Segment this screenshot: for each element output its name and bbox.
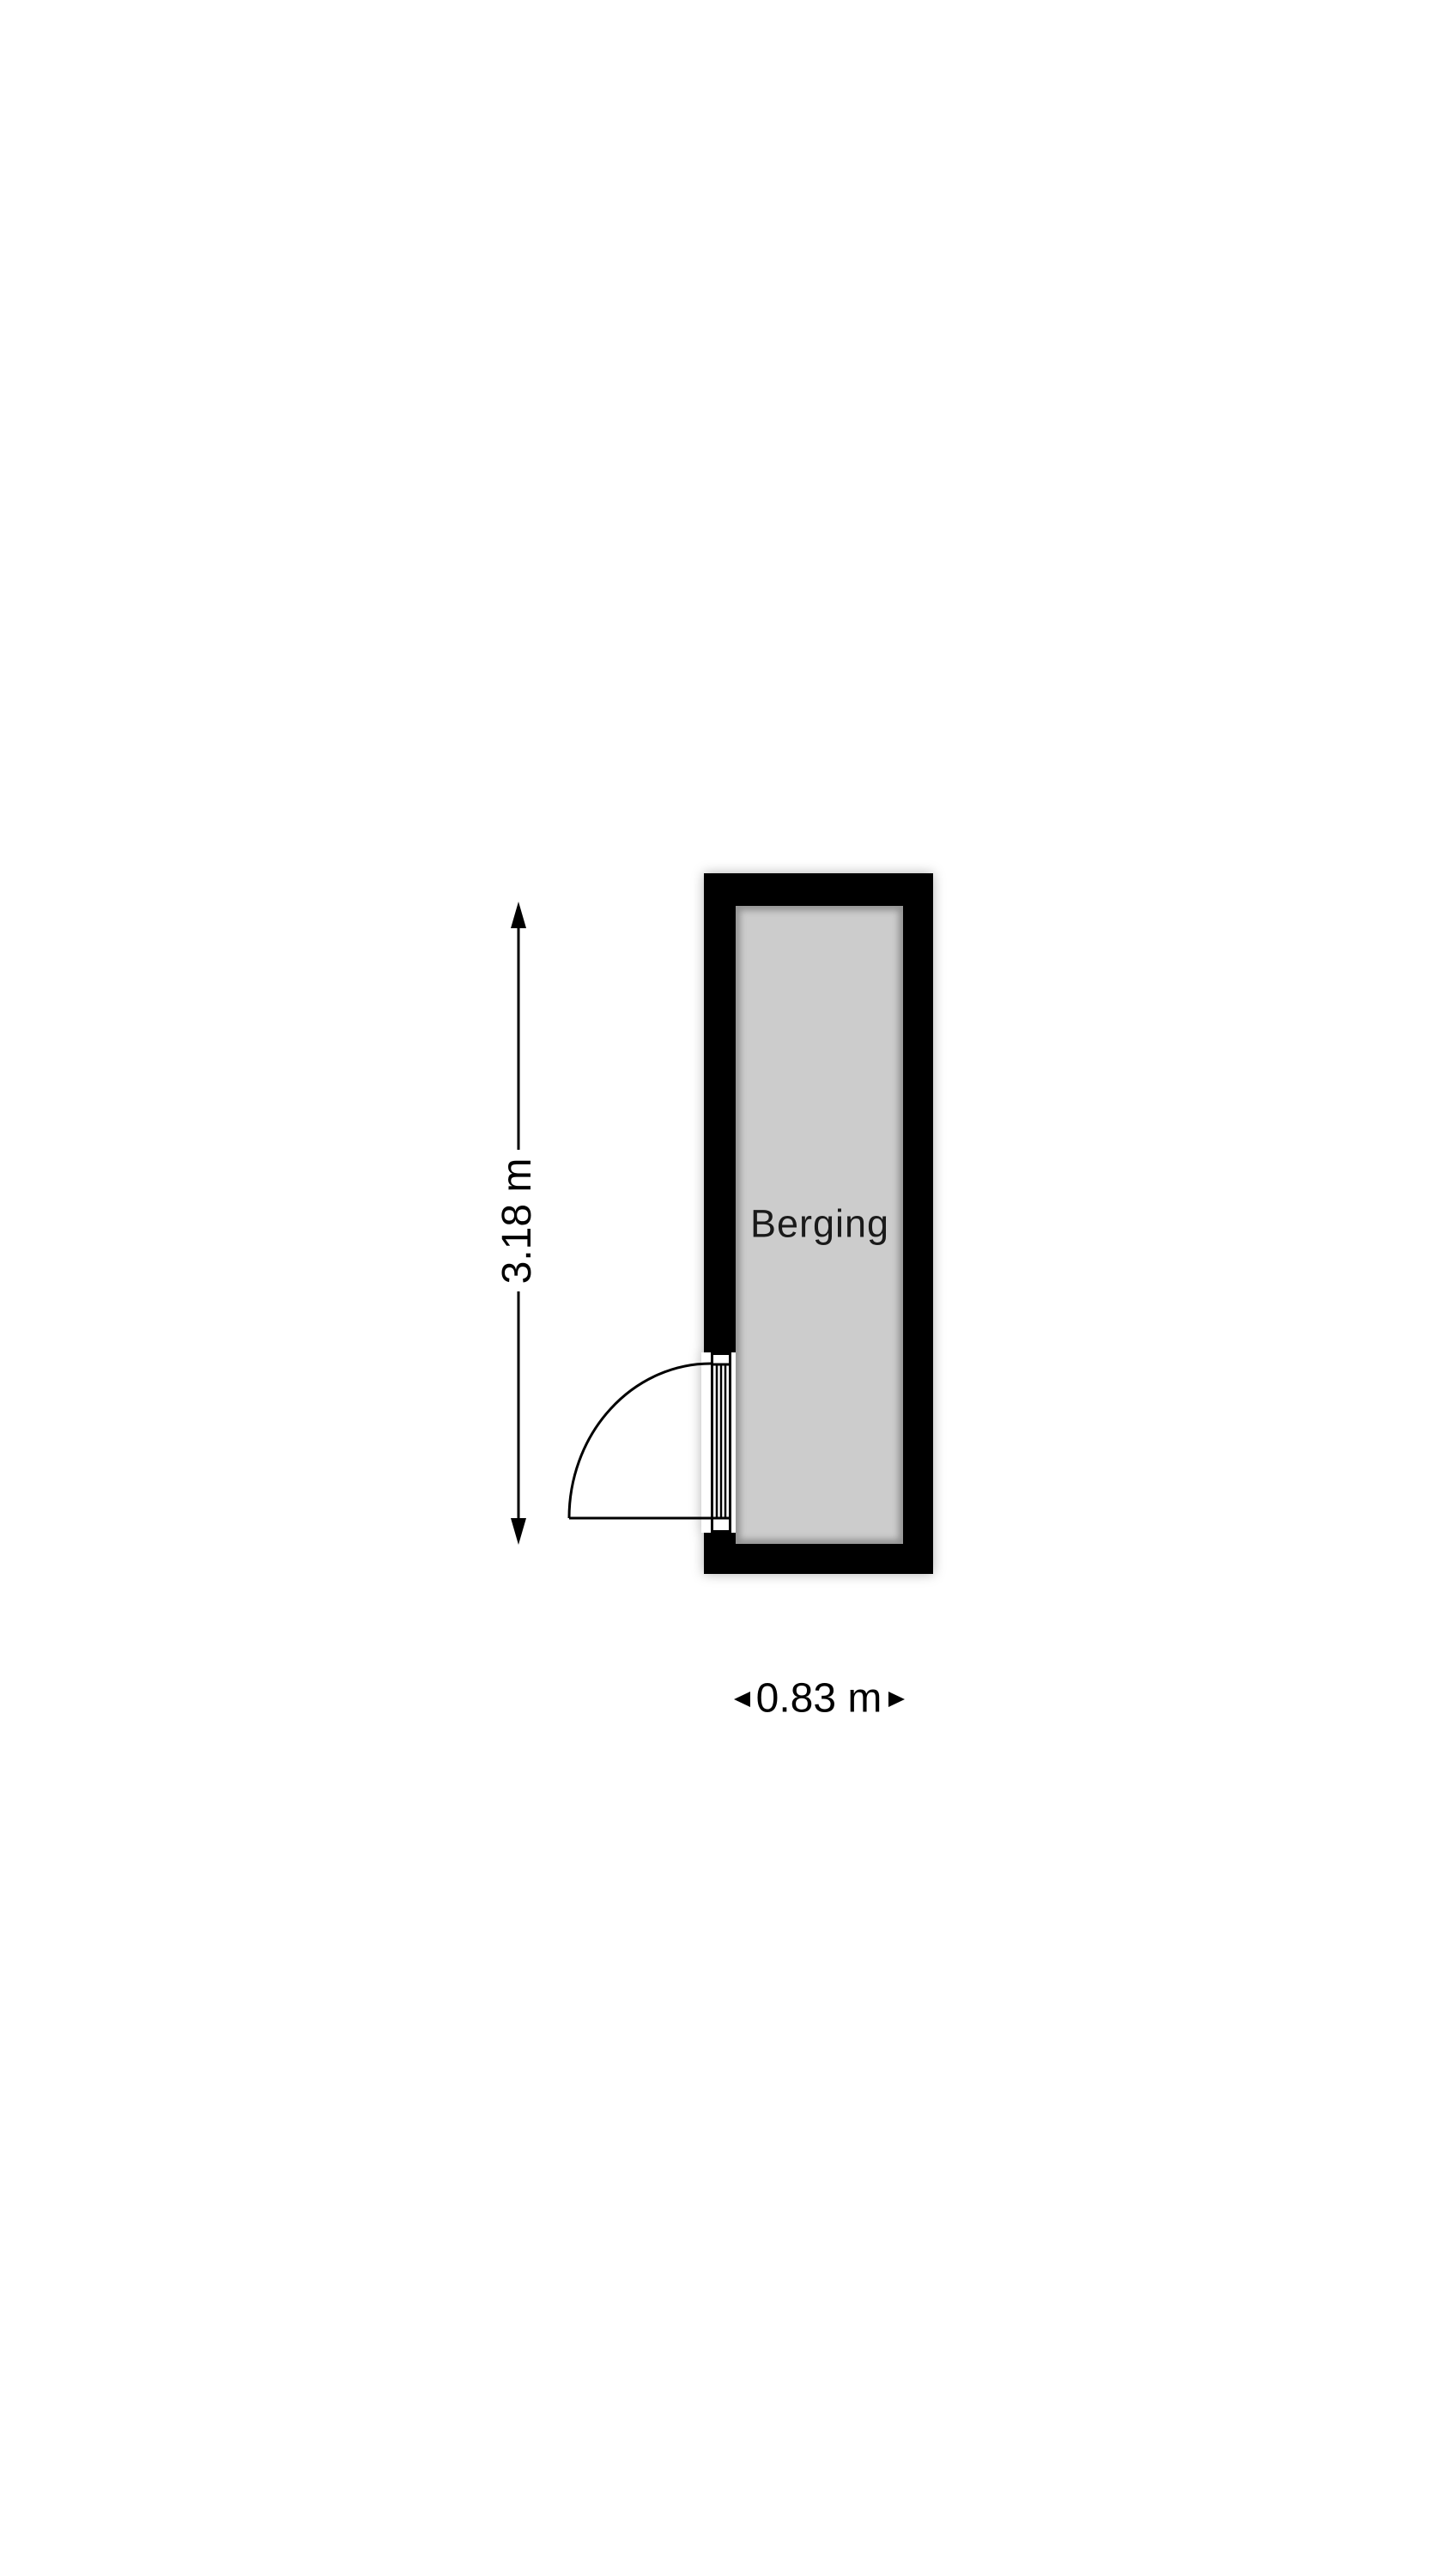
floorplan-canvas: Berging 3.18 m 0.83 m	[0, 0, 1449, 2576]
width-dimension: 0.83 m	[734, 1675, 905, 1721]
arrow-right-icon	[888, 1692, 905, 1707]
width-dimension-label: 0.83 m	[756, 1675, 882, 1721]
door-swing-arc-icon	[569, 1364, 711, 1518]
arrow-left-icon	[734, 1692, 750, 1707]
height-dimension-label: 3.18 m	[494, 1158, 540, 1285]
height-dimension: 3.18 m	[494, 902, 540, 1545]
arrow-up-icon	[511, 902, 526, 928]
arrow-down-icon	[511, 1518, 526, 1545]
floorplan-drawing: Berging 3.18 m 0.83 m	[0, 0, 1449, 2576]
room-label: Berging	[750, 1202, 889, 1246]
